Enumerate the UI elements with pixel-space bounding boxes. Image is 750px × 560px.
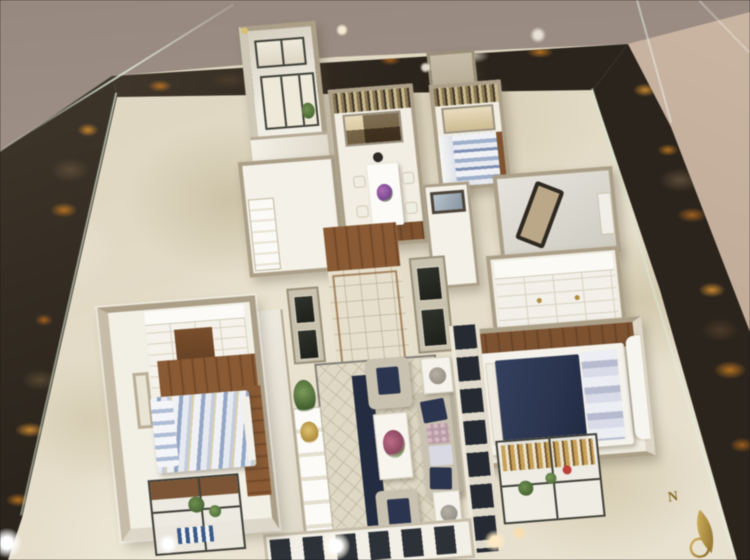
- potted-plant: [518, 480, 535, 496]
- dining-window: [342, 110, 403, 146]
- coffee-table: [373, 412, 414, 480]
- display-cabinet: [286, 286, 326, 364]
- figurine: [372, 152, 383, 163]
- light-flare: [484, 530, 506, 552]
- light-flare: [530, 27, 546, 43]
- side-table: [420, 356, 454, 394]
- room-hallway: [323, 222, 411, 374]
- navy-cushion: [376, 366, 401, 395]
- wood-floor: [323, 222, 400, 272]
- dining-chair: [405, 201, 418, 214]
- bedroom-window: [441, 104, 496, 134]
- ceiling-cornice: [433, 84, 499, 107]
- floor-border-trim: [332, 270, 407, 369]
- table-lamp: [428, 367, 447, 385]
- red-flower: [562, 465, 572, 475]
- balcony-sliding-door: [260, 72, 319, 130]
- scale-model-photo: N: [0, 0, 750, 560]
- light-flare: [336, 24, 348, 36]
- dining-chair: [353, 175, 366, 188]
- lamp-finial: [241, 27, 249, 35]
- pillow-stack: [580, 349, 625, 441]
- light-flare: [158, 534, 178, 554]
- striped-cushion: [177, 525, 215, 544]
- kitchen-counter: [248, 198, 281, 272]
- dining-chair: [356, 205, 369, 218]
- light-flare: [420, 62, 431, 73]
- navy-duvet: [495, 354, 588, 446]
- dark-glass-panel: [297, 329, 320, 360]
- dark-glass-panel: [293, 295, 316, 324]
- light-flare: [512, 526, 526, 540]
- navy-pillow: [430, 467, 452, 489]
- dining-chair: [402, 172, 415, 185]
- balcony-window-frame: [254, 37, 307, 69]
- armchair: [364, 357, 413, 410]
- window-mullion: [280, 77, 287, 127]
- window-mullion: [298, 75, 305, 125]
- framed-artwork: [430, 190, 466, 215]
- bathtub: [515, 180, 565, 249]
- flower-centerpiece: [382, 429, 407, 459]
- dark-glass-panel: [420, 308, 448, 348]
- potted-plant: [209, 505, 222, 518]
- floral-pillow: [426, 423, 450, 445]
- apartment-model: [0, 0, 750, 560]
- bathroom-fixture: [597, 192, 615, 235]
- navy-pillow: [420, 398, 448, 424]
- light-flare: [322, 532, 350, 560]
- dark-glass-panel: [416, 266, 443, 302]
- window-mullion: [280, 40, 285, 64]
- white-pillow: [428, 444, 453, 466]
- compass-north-label: N: [667, 489, 679, 506]
- room-master-balcony: [495, 433, 605, 525]
